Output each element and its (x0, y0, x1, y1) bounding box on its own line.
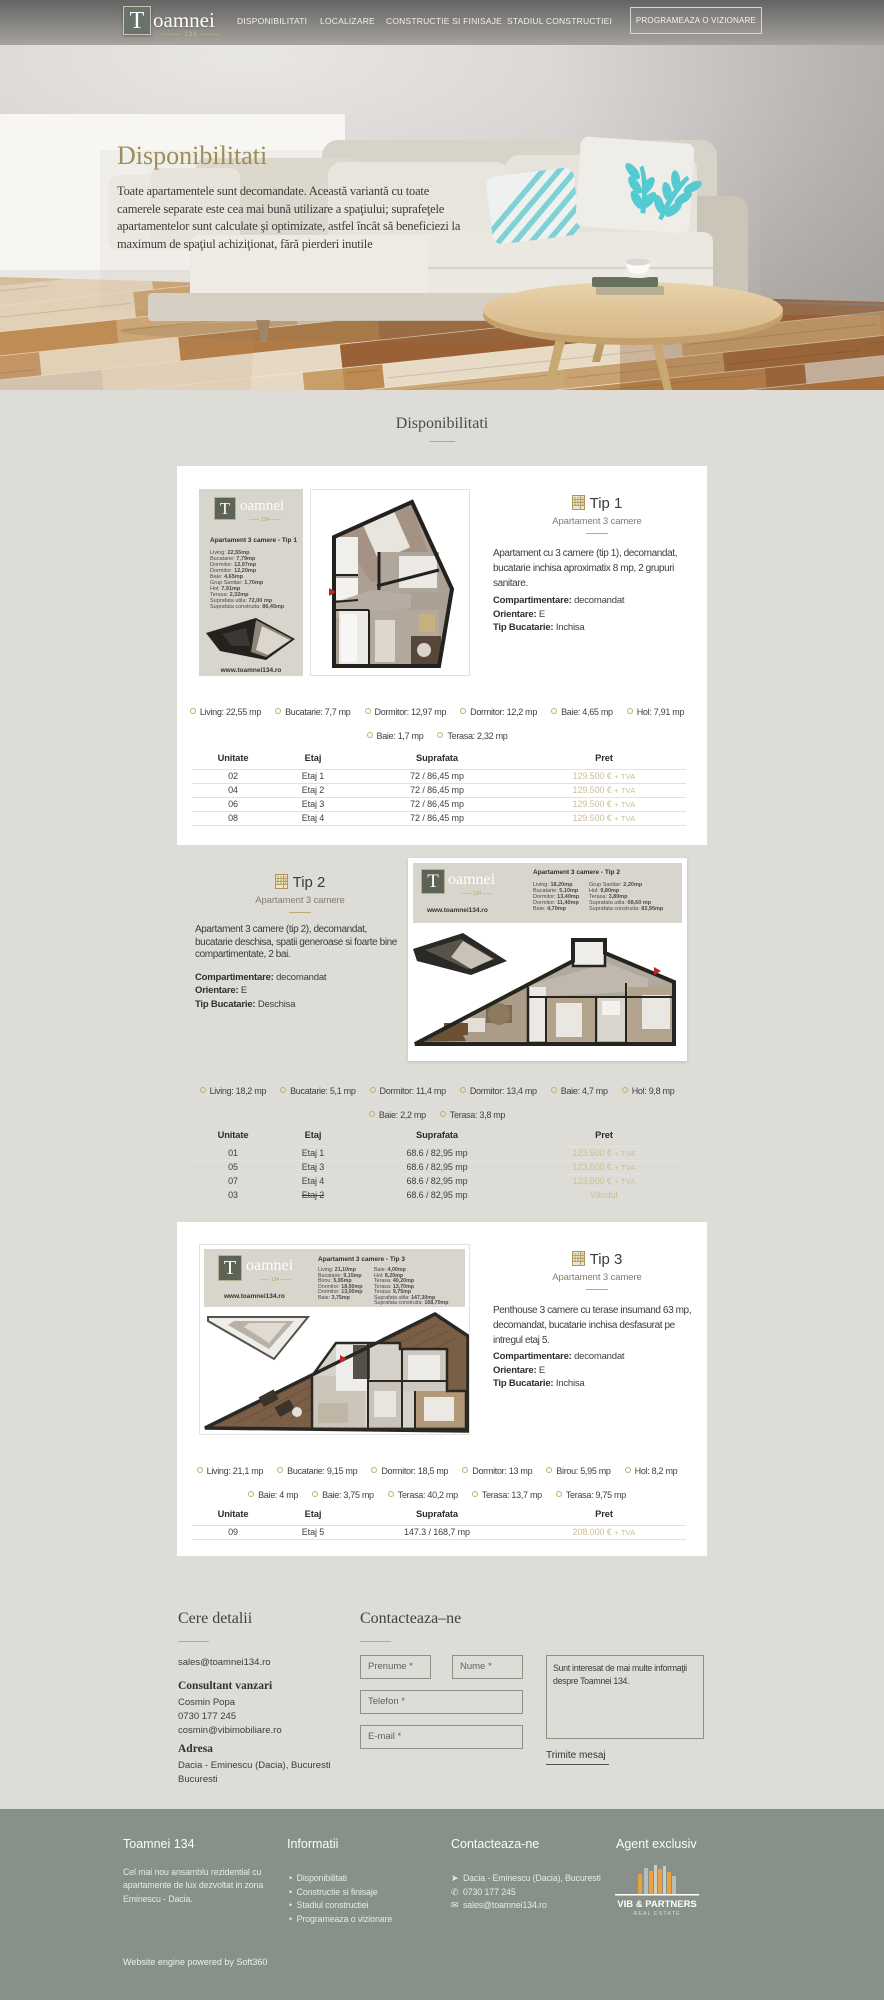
svg-text:REAL ESTATE: REAL ESTATE (633, 1911, 680, 1917)
svg-text:VIB & PARTNERS: VIB & PARTNERS (617, 1899, 697, 1910)
